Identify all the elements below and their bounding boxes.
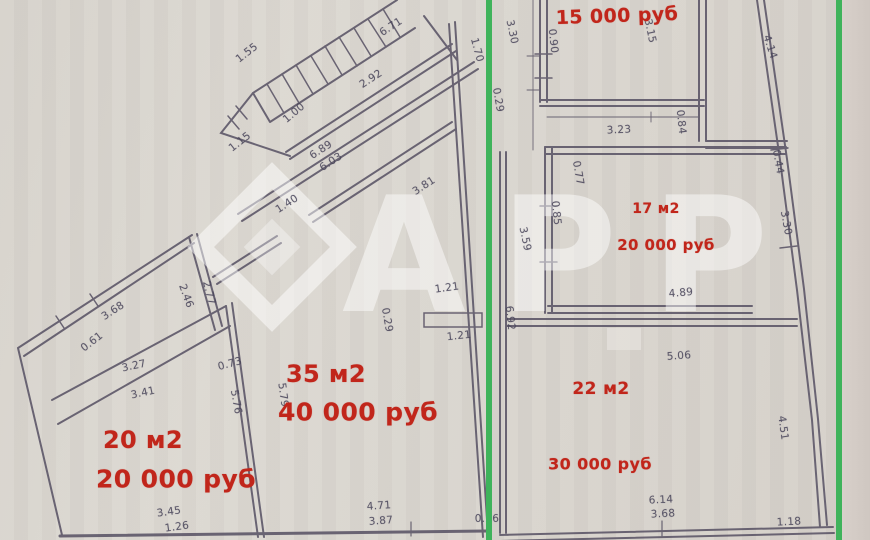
area-label-room-17m2: 17 м2 (632, 201, 680, 217)
floor-plan-photo: АРР 1.556.712.921.001.156.896.033.811.40… (0, 0, 870, 540)
price-label-top-right-room: 15 000 руб (555, 3, 678, 29)
green-divider-left (486, 0, 492, 540)
price-label-room-35m2: 40 000 руб (278, 398, 438, 427)
area-label-room-35m2: 35 м2 (286, 360, 366, 388)
green-divider-right (836, 0, 842, 540)
listing-labels: 15 000 руб17 м220 000 руб22 м230 000 руб… (0, 0, 870, 540)
paper-right-strip (842, 0, 870, 540)
area-label-room-20m2: 20 м2 (103, 426, 183, 454)
area-label-room-22m2: 22 м2 (572, 379, 629, 399)
price-label-room-17m2: 20 000 руб (617, 236, 715, 254)
price-label-room-22m2: 30 000 руб (548, 455, 652, 474)
price-label-room-20m2: 20 000 руб (96, 465, 256, 494)
